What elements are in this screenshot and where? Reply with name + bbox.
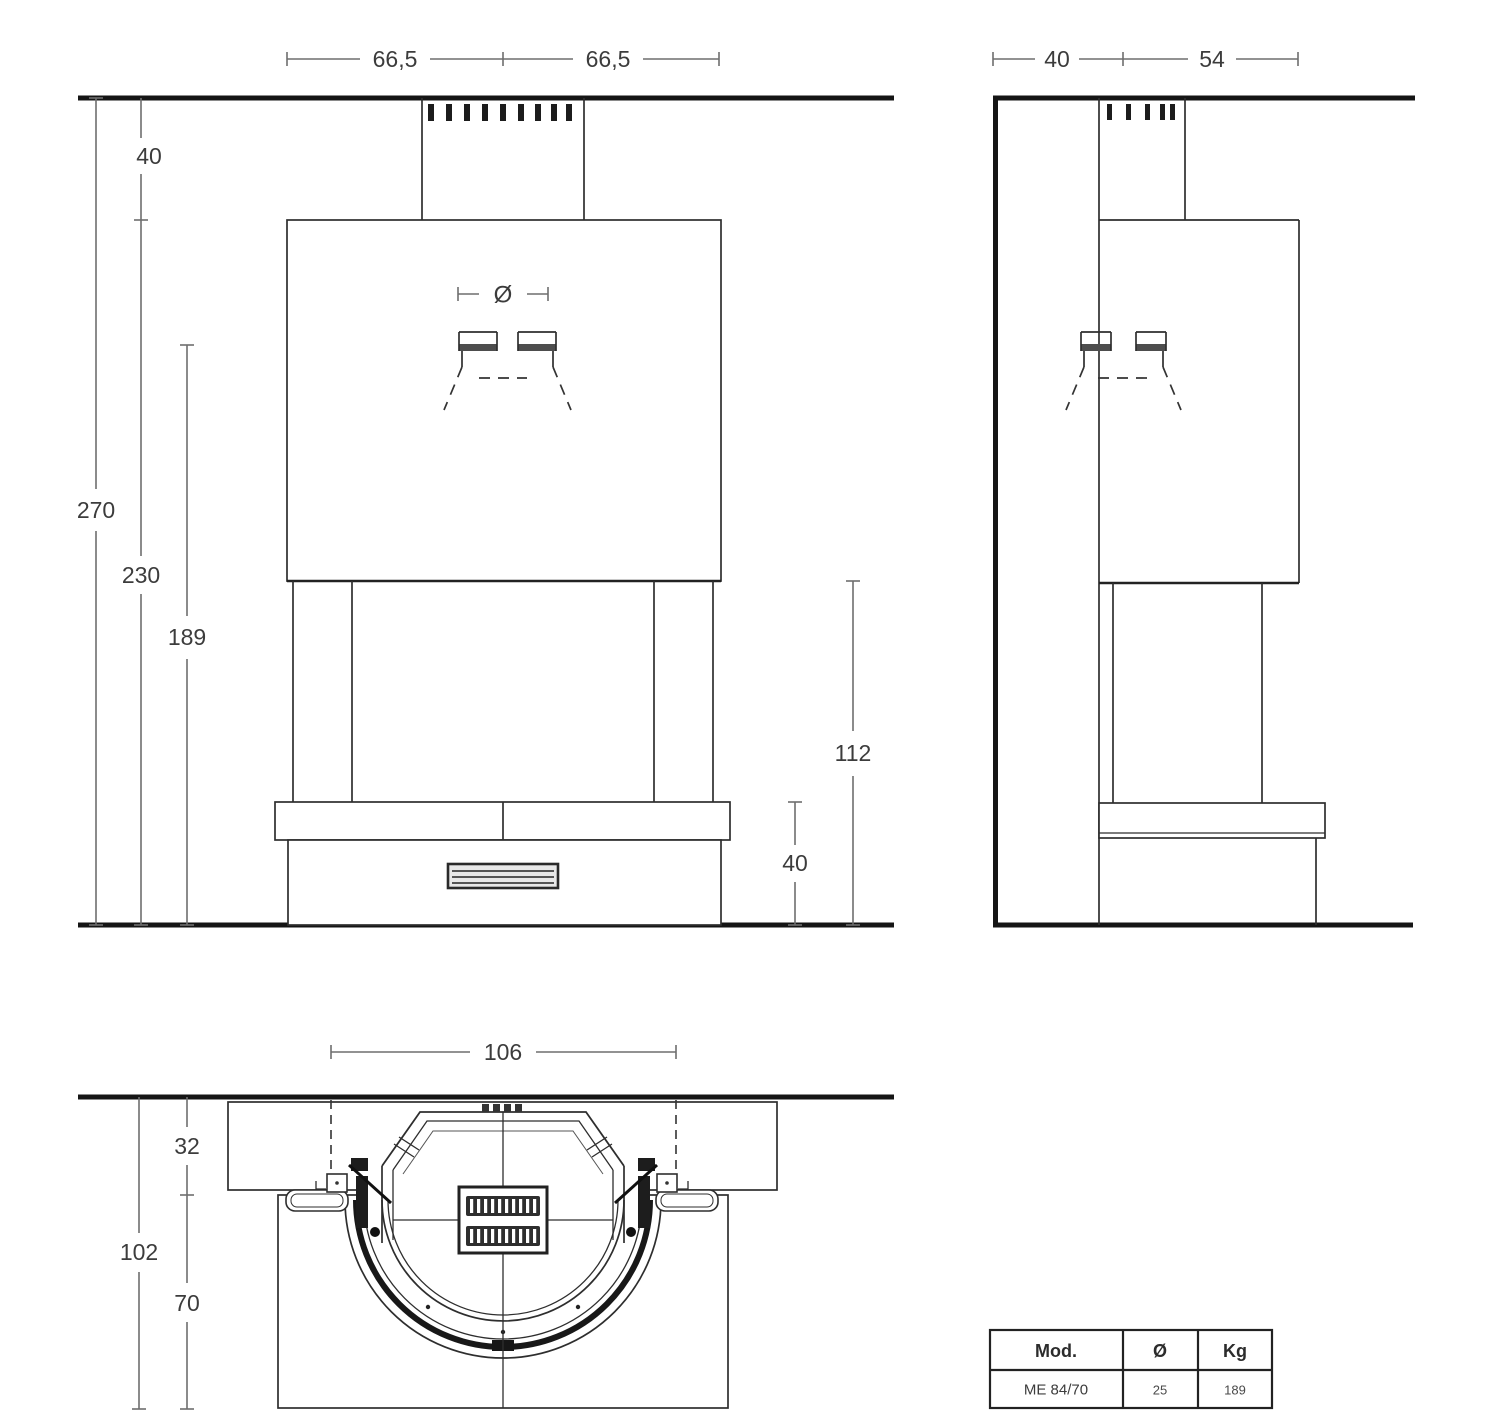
- side-top-dimension: 40 54: [993, 46, 1298, 72]
- table-header-model: Mod.: [1035, 1341, 1077, 1361]
- dim-102: 102: [120, 1239, 158, 1265]
- front-duct-hatches: [428, 104, 572, 121]
- dim-106: 106: [484, 1039, 522, 1065]
- dim-70: 70: [174, 1290, 200, 1316]
- dim-270: 270: [77, 497, 115, 523]
- spec-table: Mod. Ø Kg ME 84/70 25 189: [990, 1330, 1272, 1408]
- table-cell-model: ME 84/70: [1024, 1382, 1088, 1399]
- plan-view: 106 102 32 70: [78, 1039, 894, 1409]
- dim-189: 189: [168, 624, 206, 650]
- front-left-dimensions: 270 40 230 189: [77, 98, 206, 925]
- front-columns: [293, 581, 713, 802]
- dim-40-base: 40: [782, 850, 808, 876]
- dim-112: 112: [835, 740, 872, 766]
- table-cell-weight: 189: [1224, 1383, 1246, 1398]
- side-duct-hatches: [1107, 104, 1175, 120]
- plan-top-vent-marks: [482, 1104, 522, 1112]
- plan-grate: [459, 1187, 547, 1253]
- drawing-canvas: Ø: [0, 0, 1500, 1427]
- front-base-vent-grille: [448, 864, 558, 888]
- front-hood: [287, 220, 721, 581]
- dim-40-side: 40: [1044, 46, 1070, 72]
- front-view: Ø: [77, 46, 894, 925]
- flue-diameter-symbol: Ø: [494, 282, 513, 309]
- dim-32: 32: [174, 1133, 200, 1159]
- table-header-weight: Kg: [1223, 1341, 1247, 1361]
- dim-66-5-left: 66,5: [373, 46, 418, 72]
- technical-drawing-page: Ø: [0, 0, 1500, 1427]
- dim-230: 230: [122, 562, 160, 588]
- side-flue-collar: [1066, 332, 1181, 410]
- dim-40-top: 40: [136, 143, 162, 169]
- plan-left-dimensions: 102 32 70: [120, 1097, 200, 1409]
- table-header-diameter: Ø: [1153, 1341, 1167, 1361]
- dim-54-side: 54: [1199, 46, 1225, 72]
- dim-66-5-right: 66,5: [586, 46, 631, 72]
- plan-right-bracket: [656, 1174, 718, 1211]
- table-cell-diameter: 25: [1153, 1383, 1167, 1398]
- plan-top-dimension: 106: [331, 1039, 676, 1065]
- front-top-dimension: 66,5 66,5: [287, 46, 719, 72]
- side-view: 40 54: [993, 46, 1415, 925]
- front-right-dimensions: 112 40: [782, 581, 871, 925]
- plan-left-bracket: [286, 1174, 348, 1211]
